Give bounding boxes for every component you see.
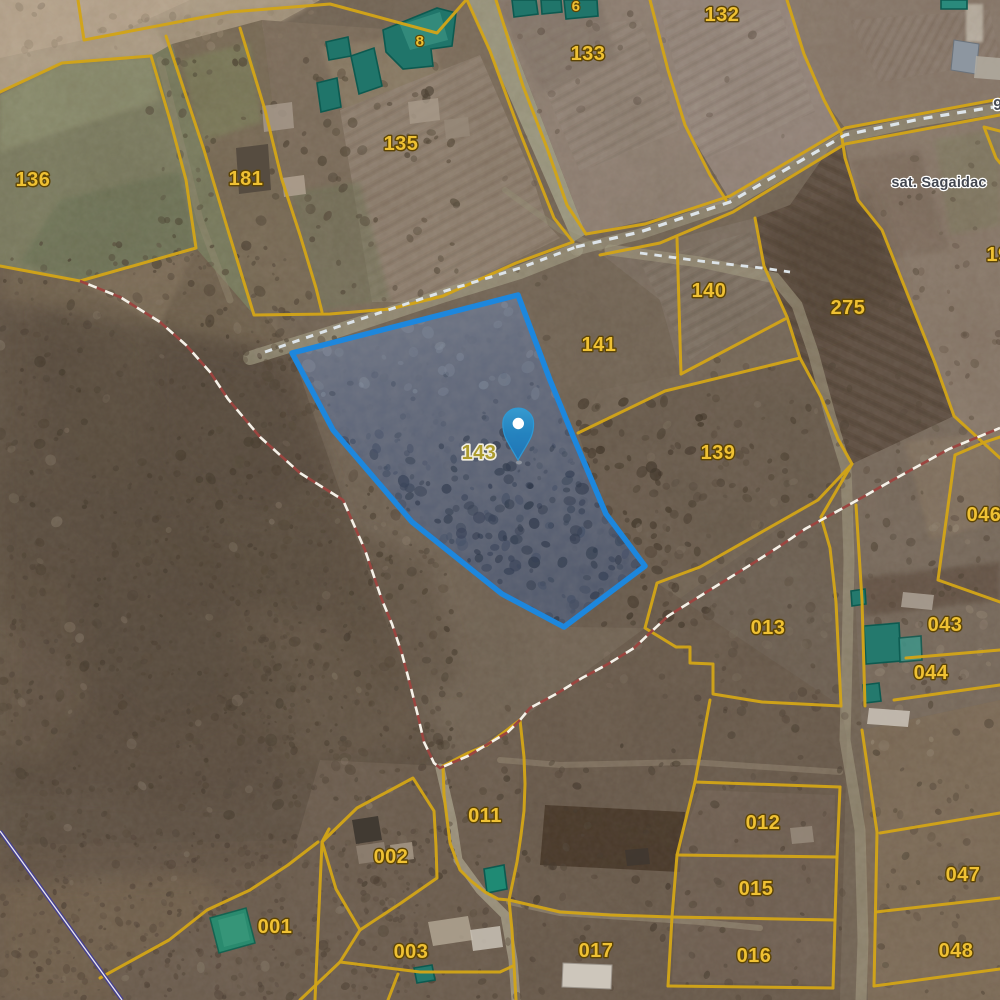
svg-text:001: 001 (258, 916, 293, 938)
svg-text:sat. Sagaidac: sat. Sagaidac (891, 175, 986, 191)
svg-text:013: 013 (751, 617, 786, 639)
svg-text:133: 133 (571, 43, 606, 65)
svg-text:043: 043 (928, 614, 963, 636)
svg-text:044: 044 (914, 662, 949, 684)
svg-text:012: 012 (746, 812, 781, 834)
svg-text:136: 136 (16, 169, 51, 191)
svg-text:002: 002 (374, 846, 409, 868)
svg-text:19: 19 (986, 244, 1000, 266)
svg-text:015: 015 (739, 878, 774, 900)
svg-text:017: 017 (579, 940, 614, 962)
svg-text:9: 9 (993, 97, 1000, 114)
svg-text:011: 011 (468, 805, 502, 827)
svg-text:140: 140 (692, 280, 727, 302)
svg-text:046: 046 (967, 504, 1000, 526)
svg-text:016: 016 (737, 945, 772, 967)
svg-text:047: 047 (946, 864, 981, 886)
svg-text:275: 275 (831, 297, 866, 319)
svg-text:048: 048 (939, 940, 974, 962)
svg-text:8: 8 (416, 33, 425, 50)
svg-text:141: 141 (582, 334, 617, 356)
svg-text:143: 143 (462, 442, 497, 464)
svg-text:132: 132 (705, 4, 740, 26)
svg-text:139: 139 (701, 442, 736, 464)
svg-text:6: 6 (572, 0, 581, 15)
svg-text:181: 181 (229, 168, 264, 190)
svg-text:135: 135 (384, 133, 419, 155)
svg-text:003: 003 (394, 941, 429, 963)
